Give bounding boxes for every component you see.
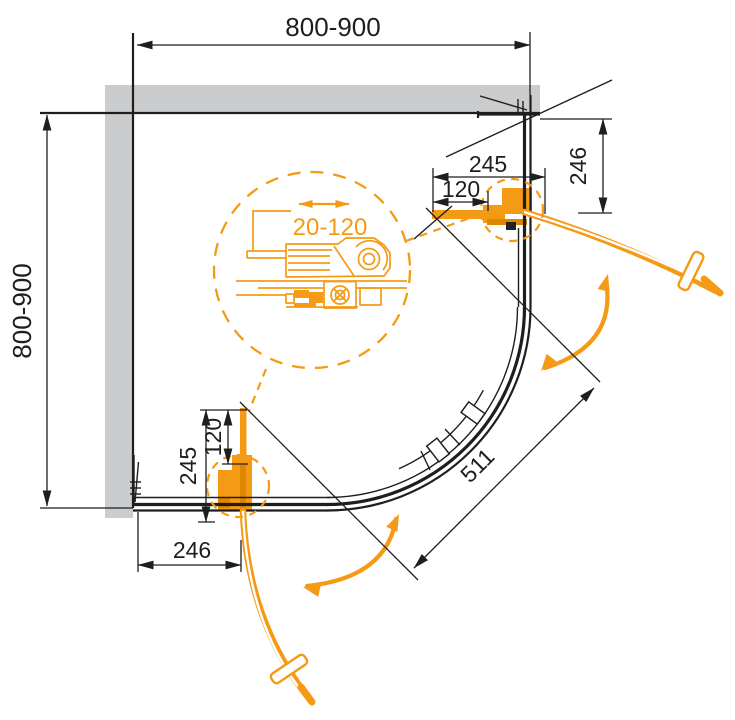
door-handle-icon — [269, 653, 308, 684]
dim-label-overall-depth: 800-900 — [7, 263, 37, 358]
dim-line-diagonal-opening — [414, 388, 594, 568]
dim-label-overall-width: 800-900 — [285, 12, 380, 42]
drawing-canvas: 20-120 — [0, 0, 735, 720]
shower-enclosure-technical-drawing: 20-120 — [0, 0, 735, 720]
wall-left — [105, 85, 133, 518]
door-tip — [301, 687, 312, 702]
bottom-door-open — [243, 511, 312, 702]
roller-bracket-icon — [461, 402, 485, 424]
dim-label-bottom-side: 246 — [173, 537, 211, 563]
swing-arrow-bottom-icon — [302, 511, 405, 596]
adjustment-range-label: 20-120 — [293, 214, 368, 241]
detail-balloon: 20-120 — [214, 172, 478, 411]
dim-label-bottom-door-total: 245 — [175, 447, 201, 485]
roller-bracket-icon — [427, 438, 450, 462]
dim-label-bottom-door-pivot: 120 — [200, 418, 226, 456]
dim-label-right-side: 246 — [565, 147, 591, 185]
wall-top — [105, 85, 540, 113]
right-door-open — [524, 212, 720, 293]
leader-to-bottom-hinge — [249, 369, 266, 411]
curved-glass-main — [327, 307, 525, 505]
dim-label-right-door-total: 245 — [469, 151, 507, 177]
dim-label-right-door-pivot: 120 — [442, 176, 480, 202]
curved-glass-outer — [327, 307, 531, 511]
swing-arrow-right-icon — [536, 272, 614, 374]
